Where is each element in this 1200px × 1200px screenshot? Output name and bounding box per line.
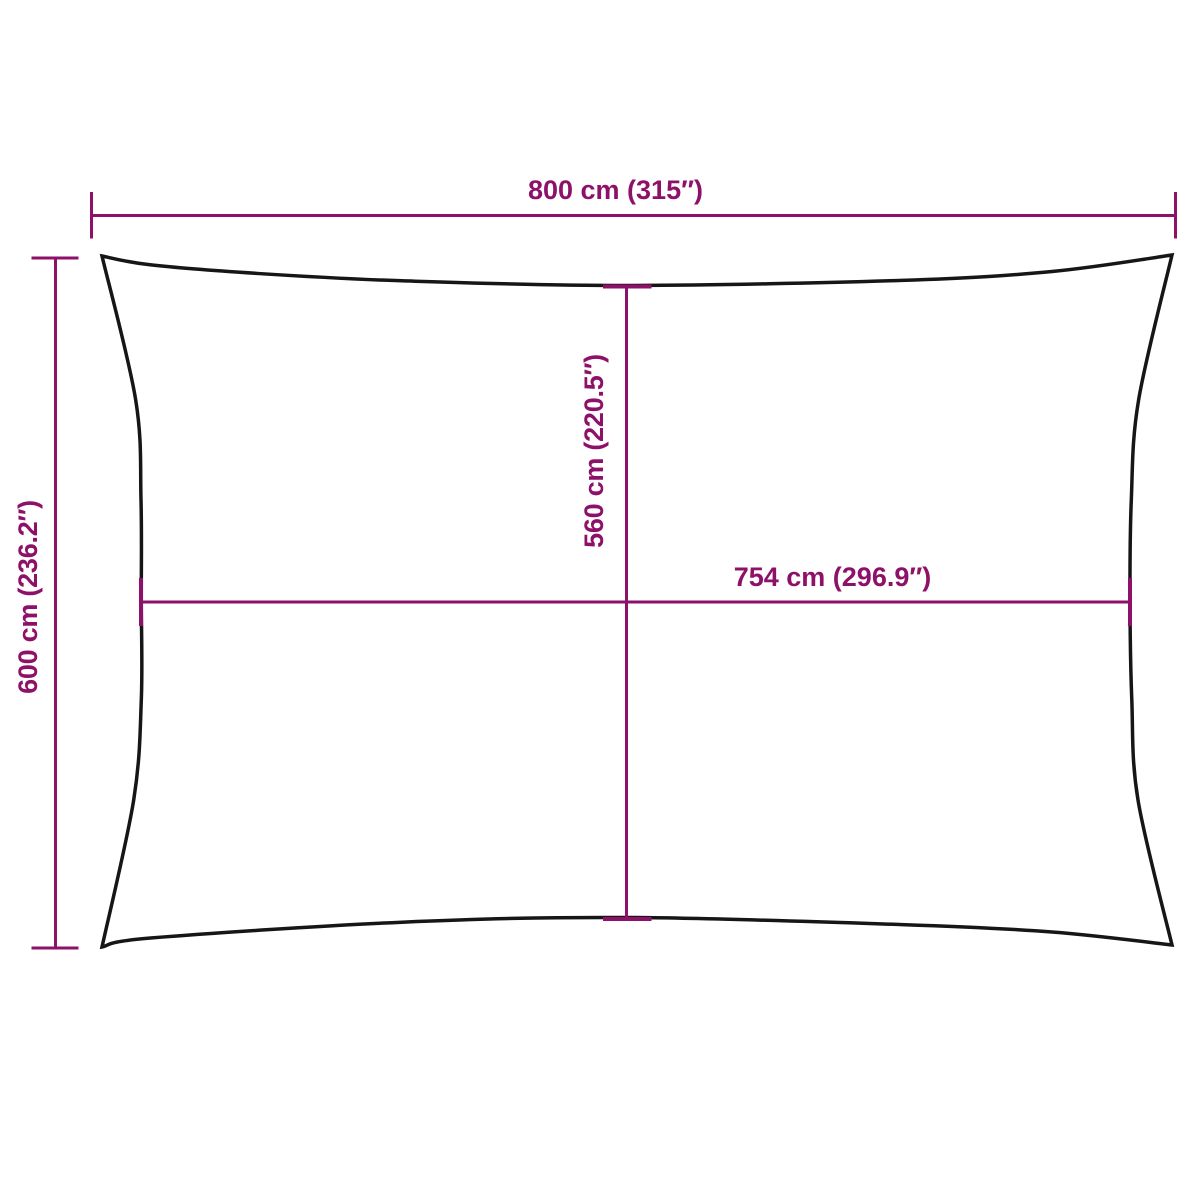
svg-text:754 cm (296.9″): 754 cm (296.9″) [734,562,932,592]
svg-text:800 cm (315″): 800 cm (315″) [528,175,703,205]
svg-text:600 cm (236.2″): 600 cm (236.2″) [13,500,43,694]
svg-text:560 cm (220.5″): 560 cm (220.5″) [579,354,609,548]
